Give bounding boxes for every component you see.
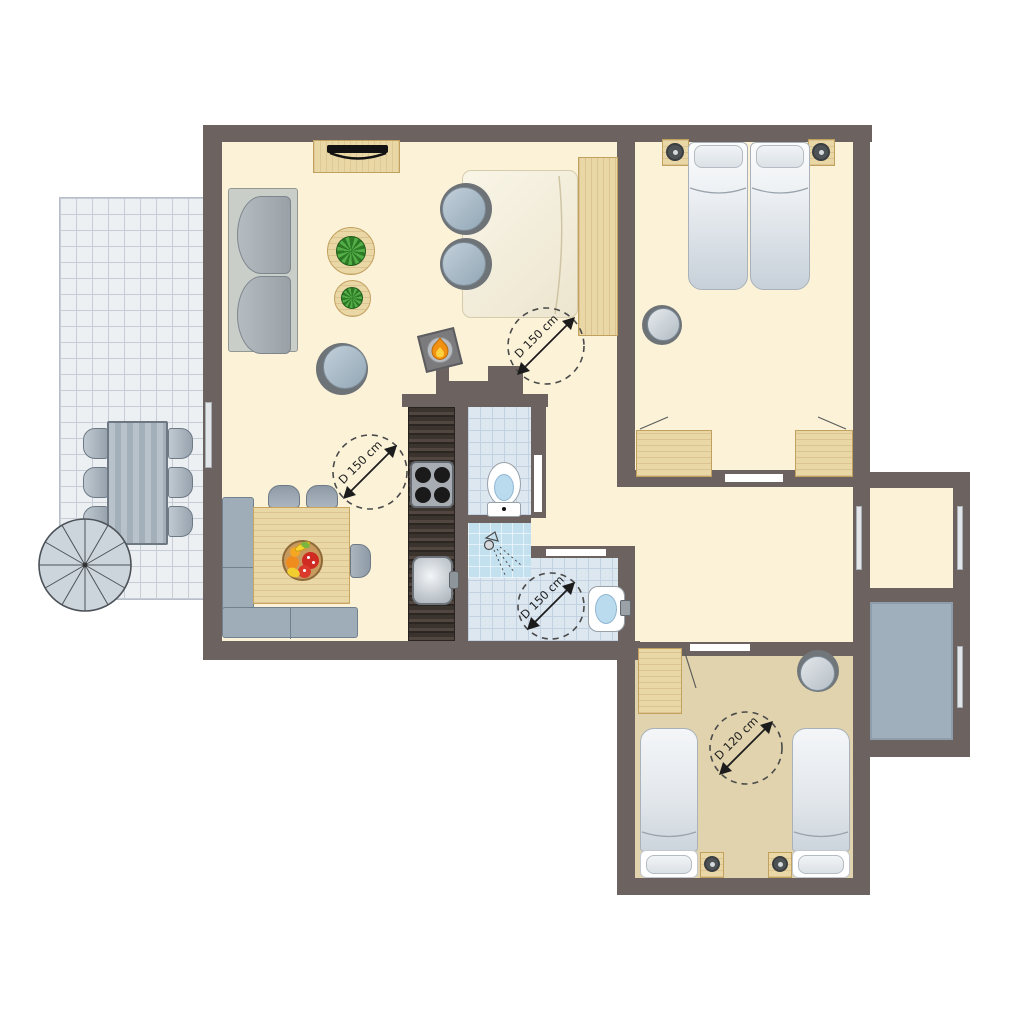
garden-chair bbox=[168, 428, 193, 459]
kitchen-sink bbox=[412, 556, 453, 605]
wall-storage-balcony bbox=[853, 588, 970, 602]
round-table bbox=[797, 650, 839, 692]
garden-chair bbox=[83, 467, 108, 498]
stove-top-plate bbox=[424, 334, 456, 366]
armchair-seat bbox=[442, 187, 486, 231]
tv-sideboard bbox=[313, 140, 400, 173]
headboard-panel bbox=[578, 157, 618, 336]
stove-duct-horizontal bbox=[436, 381, 492, 394]
round-table-top bbox=[800, 656, 835, 691]
berry-pip bbox=[307, 556, 310, 559]
burner bbox=[415, 467, 431, 483]
twin-bed-mattress bbox=[792, 728, 850, 852]
sofa-cushion bbox=[237, 196, 291, 274]
door-bedroom2 bbox=[690, 644, 750, 651]
garden-chair bbox=[83, 506, 108, 537]
bench-seam bbox=[290, 608, 291, 639]
armchair-seat bbox=[442, 242, 486, 286]
burner bbox=[434, 467, 450, 483]
pillow bbox=[798, 855, 844, 874]
garden-chair bbox=[168, 467, 193, 498]
tub-armchair bbox=[440, 183, 492, 235]
sink-faucet bbox=[449, 571, 459, 589]
balcony-floor bbox=[870, 602, 953, 740]
wall-left bbox=[203, 125, 222, 660]
door-bathroom bbox=[546, 549, 606, 556]
berry-pip bbox=[303, 569, 306, 572]
cooktop bbox=[410, 461, 454, 508]
lamp-icon bbox=[812, 143, 830, 161]
wall-bedroom2-bottom bbox=[617, 878, 870, 895]
dining-chair bbox=[306, 485, 338, 508]
pillow bbox=[756, 145, 804, 168]
tv-screen bbox=[327, 145, 388, 153]
garden-table bbox=[107, 421, 168, 545]
wardrobe bbox=[795, 430, 853, 477]
window-living-left bbox=[205, 402, 212, 468]
window-balcony-right bbox=[957, 646, 963, 708]
lamp-dot bbox=[673, 150, 678, 155]
fruit-bowl bbox=[282, 540, 323, 581]
burner bbox=[434, 487, 450, 503]
twin-bed-mattress bbox=[640, 728, 698, 852]
door-bedroom1 bbox=[725, 474, 783, 482]
round-side-table bbox=[642, 305, 682, 345]
wall-bedroom1-left bbox=[617, 125, 635, 487]
wall-bedroom2-left bbox=[617, 642, 635, 895]
wardrobe bbox=[636, 430, 712, 477]
pillow bbox=[694, 145, 743, 168]
berry-pip bbox=[312, 561, 315, 564]
wall-kitchen-divider bbox=[455, 394, 468, 647]
kitchen-counter bbox=[408, 407, 455, 643]
window-storage-left bbox=[856, 506, 862, 570]
wall-bedroom1-right bbox=[853, 125, 870, 472]
chimney-block bbox=[488, 366, 523, 398]
plant-icon bbox=[336, 236, 366, 266]
sofa-cushion bbox=[237, 276, 291, 354]
plant-icon bbox=[341, 287, 363, 309]
lamp-icon bbox=[704, 856, 720, 872]
floor-plan: D 150 cm D 150 cm D 150 cm D 120 cm bbox=[0, 0, 1024, 1024]
pillow bbox=[646, 855, 692, 874]
toilet-bowl-inner bbox=[494, 474, 514, 501]
storage-room-floor bbox=[870, 488, 953, 588]
garden-chair bbox=[83, 428, 108, 459]
window-storage-right bbox=[957, 506, 963, 570]
lamp-icon bbox=[772, 856, 788, 872]
tub-armchair bbox=[440, 238, 492, 290]
wall-kitchen-top bbox=[402, 394, 548, 407]
lamp-icon bbox=[666, 143, 684, 161]
hallway-floor bbox=[617, 487, 853, 642]
tub-armchair bbox=[316, 343, 368, 395]
dining-chair bbox=[268, 485, 300, 508]
closet bbox=[638, 648, 682, 714]
toilet-button bbox=[502, 507, 506, 511]
wall-bottom-left bbox=[203, 641, 640, 660]
shower-floor bbox=[468, 521, 531, 578]
washbasin-tap bbox=[620, 600, 631, 616]
garden-chair bbox=[168, 506, 193, 537]
wall-top bbox=[203, 125, 872, 142]
wall-balcony-bottom bbox=[853, 740, 970, 757]
armchair-seat bbox=[323, 345, 367, 389]
burner bbox=[415, 487, 431, 503]
side-table-top bbox=[647, 308, 680, 341]
lamp-dot bbox=[778, 862, 783, 867]
corner-bench-horizontal bbox=[222, 607, 358, 638]
lamp-dot bbox=[819, 150, 824, 155]
washbasin-inner bbox=[595, 594, 617, 624]
sofa bbox=[228, 188, 298, 352]
lamp-dot bbox=[710, 862, 715, 867]
bench-seam bbox=[223, 567, 255, 568]
dining-chair bbox=[350, 544, 371, 578]
door-toilet bbox=[534, 455, 542, 512]
